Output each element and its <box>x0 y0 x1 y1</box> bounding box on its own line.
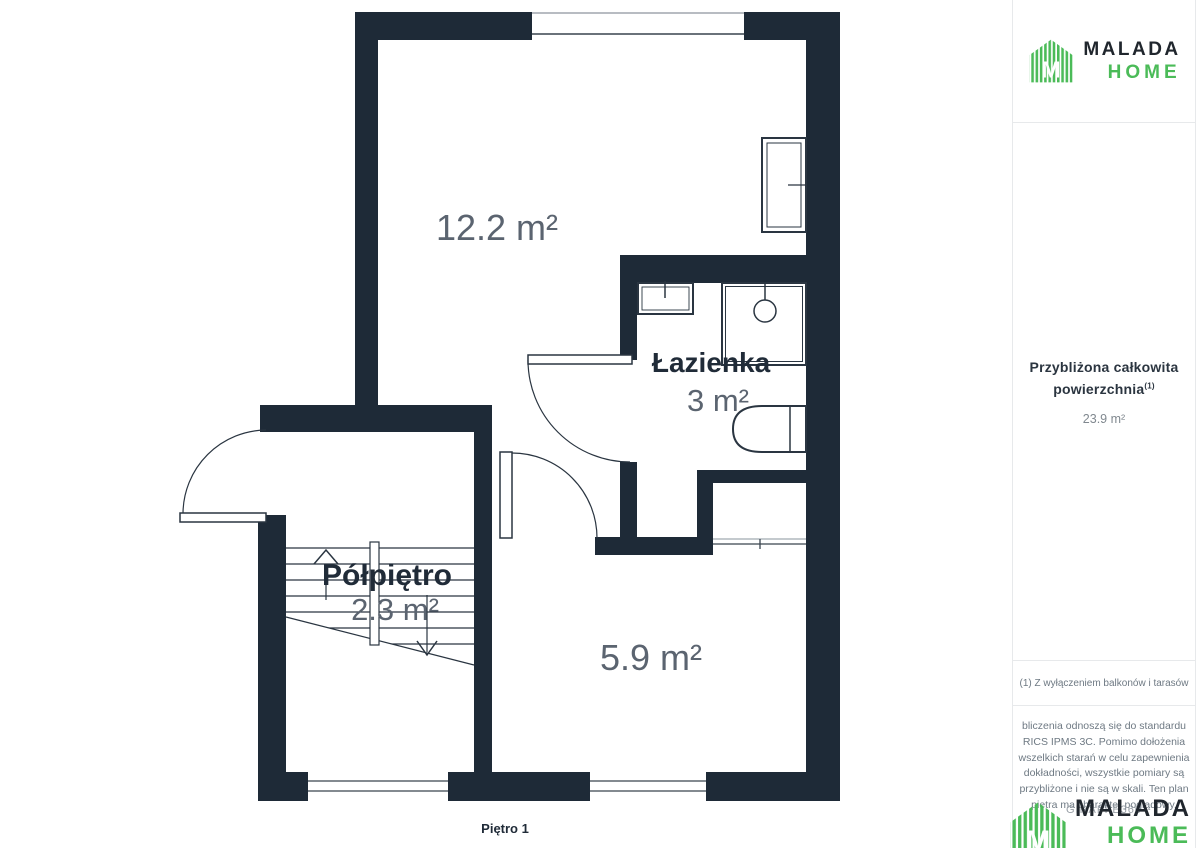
svg-text:M: M <box>1042 56 1061 82</box>
area-summary-title: Przybliżona całkowita powierzchnia(1) <box>1030 357 1179 400</box>
svg-text:M: M <box>1026 825 1051 848</box>
brand-primary: MALADA <box>1075 797 1191 821</box>
window-stairwell <box>308 772 448 801</box>
disclaimer-line: dokładności, wszystkie pomiary są <box>1013 766 1195 782</box>
entrance-door <box>180 430 266 522</box>
disclaimer-line: bliczenia odnoszą się do standardu <box>1013 719 1195 735</box>
radiator <box>762 138 806 232</box>
brand-logo: M MALADA HOME <box>1013 0 1195 123</box>
bathroom-door <box>528 355 632 462</box>
brand-logo-large: M MALADA HOME <box>1007 797 1191 848</box>
window-top <box>532 12 744 40</box>
malada-house-icon: M <box>1007 797 1069 848</box>
brand-wordmark: MALADA HOME <box>1075 797 1191 848</box>
bathroom-name-label: Łazienka <box>652 347 771 378</box>
footnote: (1) Z wyłączeniem balkonów i tarasów <box>1013 661 1195 706</box>
bathroom-area-label: 3 m² <box>687 383 749 418</box>
disclaimer-line: wszelkich starań w celu zapewnienia <box>1013 751 1195 767</box>
summary-footnote-marker: (1) <box>1144 381 1154 390</box>
malada-house-icon: M <box>1027 35 1075 87</box>
room-top-area-label: 12.2 m² <box>436 207 558 248</box>
opening-room-bottom <box>713 539 806 549</box>
area-summary-section: Przybliżona całkowita powierzchnia(1) 23… <box>1013 123 1195 661</box>
sink <box>638 281 693 314</box>
disclaimer-section: bliczenia odnoszą się do standardu RICS … <box>1013 706 1195 847</box>
brand-secondary: HOME <box>1108 63 1181 82</box>
summary-title-line1: Przybliżona całkowita <box>1030 359 1179 375</box>
window-room-bottom <box>590 772 706 801</box>
area-summary: Przybliżona całkowita powierzchnia(1) 23… <box>1030 357 1179 426</box>
floorplan-page: 12.2 m² Łazienka 3 m² Półpiętro 2.3 m² 5… <box>0 0 1200 848</box>
landing-area-label: 2.3 m² <box>351 592 439 627</box>
room-bottom-door <box>500 452 597 538</box>
brand-secondary: HOME <box>1107 824 1191 848</box>
total-area-value: 23.9 m² <box>1030 412 1179 426</box>
landing-name-label: Półpiętro <box>322 559 452 592</box>
brand-primary: MALADA <box>1083 40 1180 59</box>
floorplan-drawing: 12.2 m² Łazienka 3 m² Półpiętro 2.3 m² 5… <box>0 0 1010 848</box>
disclaimer-line: RICS IPMS 3C. Pomimo dołożenia <box>1013 735 1195 751</box>
room-bottom-area-label: 5.9 m² <box>600 637 702 678</box>
brand-wordmark: MALADA HOME <box>1083 40 1180 82</box>
floor-label: Piętro 1 <box>481 821 529 836</box>
summary-title-line2: powierzchnia <box>1053 381 1144 397</box>
sidebar: M MALADA HOME Przybliżona całkowita powi… <box>1012 0 1196 848</box>
